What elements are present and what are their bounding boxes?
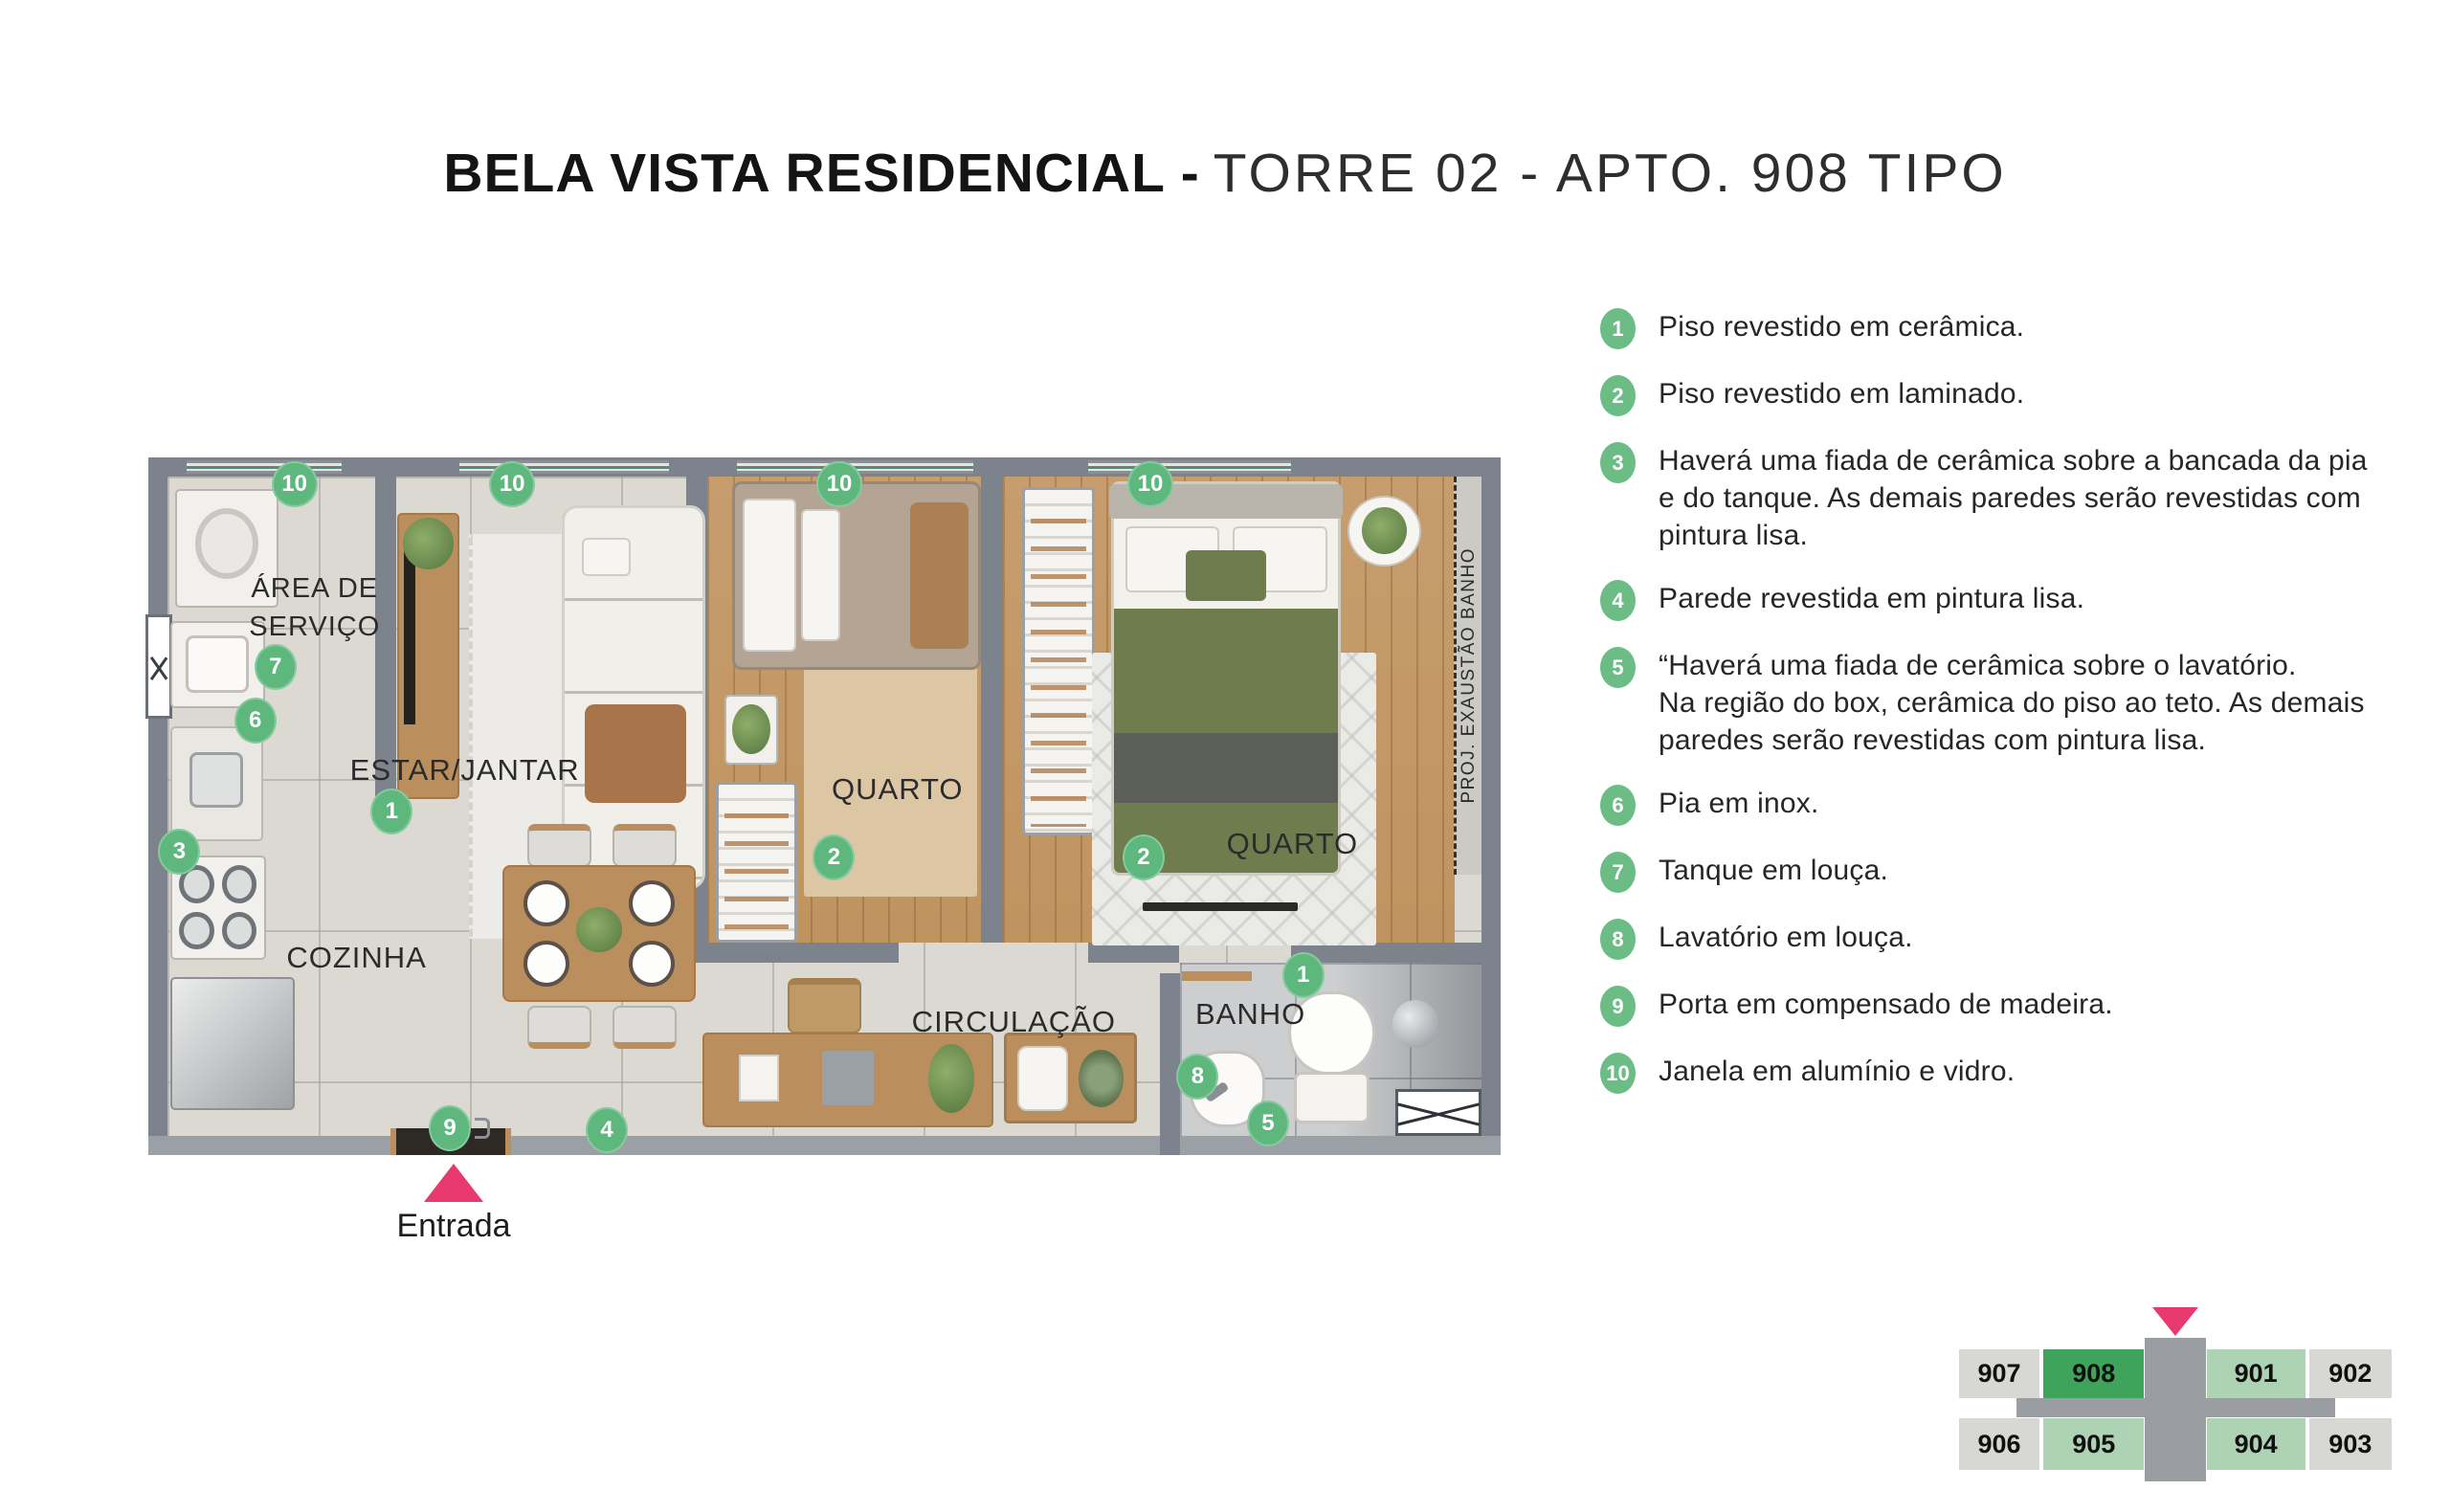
door-handle-icon: [475, 1118, 490, 1139]
bath-shelf: [1182, 971, 1252, 981]
marker-6-sink: 6: [234, 698, 277, 744]
accent-pillow: [1186, 550, 1266, 601]
dining-chair: [612, 1006, 678, 1049]
fridge: [170, 977, 295, 1110]
unit-907: 907: [1957, 1347, 2041, 1400]
plate: [629, 941, 675, 987]
entrance-arrow-icon: [424, 1164, 483, 1202]
page: BELA VISTA RESIDENCIAL -TORRE 02 - APTO.…: [0, 0, 2450, 1512]
unit-906: 906: [1957, 1416, 2041, 1472]
window-service-area: [187, 460, 342, 475]
legend-badge-9: 9: [1600, 986, 1636, 1027]
legend-badge-5: 5: [1600, 647, 1636, 688]
legend-text-2: Piso revestido em laminado.: [1659, 375, 2024, 412]
legend-item-1: 1 Piso revestido em cerâmica.: [1600, 308, 2423, 349]
bedroom2-bed: [1111, 481, 1341, 876]
legend-item-6: 6 Pia em inox.: [1600, 785, 2423, 826]
exhaust-shaft-label: PROJ. EXAUSTÃO BANHO: [1459, 547, 1480, 804]
plate: [523, 941, 569, 987]
marker-5-bath: 5: [1247, 1101, 1289, 1146]
wall-hall-bath: [1160, 973, 1180, 1155]
table-plant: [576, 907, 622, 952]
location-arrow-icon: [2152, 1307, 2198, 1336]
legend-item-8: 8 Lavatório em louça.: [1600, 919, 2423, 960]
legend-badge-1: 1: [1600, 308, 1636, 349]
unit-904: 904: [2205, 1416, 2307, 1472]
blanket-band: [1114, 733, 1338, 803]
bedroom2-tv: [1143, 902, 1298, 911]
marker-10-window2: 10: [489, 461, 535, 507]
plate: [629, 880, 675, 926]
unit-902: 902: [2307, 1347, 2394, 1400]
legend-text-4: Parede revestida em pintura lisa.: [1659, 580, 2084, 617]
plate: [523, 880, 569, 926]
wall-left: [148, 457, 167, 1155]
toilet-tank: [1294, 1072, 1370, 1124]
dining-table: [502, 865, 696, 1001]
wall-hall-seg1: [686, 943, 899, 963]
desk: [702, 1033, 993, 1126]
shower-box: [1395, 1089, 1481, 1135]
desk-chair: [788, 978, 860, 1034]
marker-1-bath: 1: [1282, 952, 1325, 998]
marker-4-wall: 4: [586, 1107, 628, 1153]
bench-pillows: [1017, 1046, 1068, 1110]
dining-chair: [527, 824, 592, 867]
sofa-pillow: [582, 538, 632, 575]
label-area-servico: ÁREA DE SERVIÇO: [249, 569, 380, 646]
desk-notebook: [739, 1055, 779, 1101]
legend-item-9: 9 Porta em compensado de madeira.: [1600, 986, 2423, 1027]
marker-2-bedroom2: 2: [1123, 834, 1165, 880]
living-plant: [403, 518, 455, 569]
legend-text-6: Pia em inox.: [1659, 785, 1818, 822]
marker-10-window1: 10: [272, 461, 318, 507]
legend-badge-7: 7: [1600, 852, 1636, 893]
bench: [1004, 1033, 1136, 1123]
legend: 1 Piso revestido em cerâmica. 2 Piso rev…: [1600, 308, 2423, 1120]
stove-burners: [179, 865, 256, 950]
legend-badge-2: 2: [1600, 375, 1636, 416]
unit-903: 903: [2307, 1416, 2394, 1472]
legend-badge-4: 4: [1600, 580, 1636, 621]
marker-7-tank: 7: [255, 644, 297, 690]
wall-bottom: [148, 1136, 1501, 1155]
dining-chair: [612, 824, 678, 867]
marker-3-counter: 3: [158, 829, 200, 875]
floor-plan: PROJ. EXAUSTÃO BANHO: [148, 457, 1501, 1155]
legend-item-4: 4 Parede revestida em pintura lisa.: [1600, 580, 2423, 621]
duvet: [1114, 609, 1338, 733]
legend-item-5: 5 “Haverá uma fiada de cerâmica sobre o …: [1600, 647, 2423, 759]
label-circulacao: CIRCULAÇÃO: [912, 1003, 1116, 1041]
elevator-core: [2145, 1338, 2206, 1481]
bed-pillow: [743, 499, 796, 652]
legend-text-3: Haverá uma fiada de cerâmica sobre a ban…: [1659, 442, 2368, 554]
wall-right: [1481, 457, 1501, 1155]
bedroom1-side-table: [724, 695, 779, 765]
bedroom2-wardrobe: [1022, 487, 1095, 836]
kitchen-sink: [170, 726, 263, 841]
marker-9-door: 9: [429, 1105, 471, 1151]
legend-text-9: Porta em compensado de madeira.: [1659, 986, 2113, 1023]
bedroom1-bed: [732, 481, 981, 670]
legend-badge-6: 6: [1600, 785, 1636, 826]
title-unit: TORRE 02 - APTO. 908 TIPO: [1214, 143, 2007, 204]
key-plan-block: 907 908 901 902 906 905 904 903: [1957, 1347, 2394, 1472]
dining-chair: [527, 1006, 592, 1049]
legend-item-7: 7 Tanque em louça.: [1600, 852, 2423, 893]
tv: [404, 549, 415, 724]
tank-basin: [186, 635, 249, 694]
unit-905: 905: [2041, 1416, 2146, 1472]
label-quarto1: QUARTO: [832, 770, 964, 809]
exhaust-shaft: PROJ. EXAUSTÃO BANHO: [1454, 477, 1481, 875]
window-bedroom2: [1088, 460, 1291, 475]
desk-plant: [928, 1044, 974, 1113]
legend-text-7: Tanque em louça.: [1659, 852, 1888, 889]
bed-pillow: [801, 509, 840, 640]
legend-item-10: 10 Janela em alumínio e vidro.: [1600, 1053, 2423, 1094]
legend-text-1: Piso revestido em cerâmica.: [1659, 308, 2024, 345]
unit-901: 901: [2205, 1347, 2307, 1400]
side-table-plant: [732, 704, 770, 754]
legend-text-5: “Haverá uma fiada de cerâmica sobre o la…: [1659, 647, 2365, 759]
label-quarto2: QUARTO: [1227, 825, 1359, 863]
marker-10-window4: 10: [1127, 461, 1173, 507]
label-estar-jantar: ESTAR/JANTAR: [350, 751, 580, 789]
page-title: BELA VISTA RESIDENCIAL -TORRE 02 - APTO.…: [0, 142, 2450, 205]
legend-text-8: Lavatório em louça.: [1659, 919, 1913, 956]
label-banho: BANHO: [1195, 995, 1305, 1034]
key-plan: 907 908 901 902 906 905 904 903: [1957, 1305, 2394, 1487]
entrance-label: Entrada: [396, 1208, 510, 1245]
legend-item-3: 3 Haverá uma fiada de cerâmica sobre a b…: [1600, 442, 2423, 554]
desk-laptop: [822, 1051, 874, 1105]
legend-text-10: Janela em alumínio e vidro.: [1659, 1053, 2015, 1090]
marker-1-living: 1: [370, 789, 412, 834]
marker-8-lavatory: 8: [1176, 1054, 1218, 1100]
bath-mirror: [1392, 1000, 1438, 1048]
service-window: [145, 614, 172, 719]
round-table-plant: [1362, 507, 1406, 554]
bench-hat: [1079, 1050, 1125, 1107]
bedroom2-round-table: [1347, 496, 1420, 567]
sink-basin: [189, 752, 243, 808]
label-cozinha: COZINHA: [286, 939, 427, 977]
title-project: BELA VISTA RESIDENCIAL -: [443, 143, 1199, 204]
bedroom1-wardrobe: [716, 782, 797, 943]
marker-10-window3: 10: [816, 461, 862, 507]
sofa-throw: [585, 704, 686, 803]
legend-item-2: 2 Piso revestido em laminado.: [1600, 375, 2423, 416]
legend-badge-3: 3: [1600, 442, 1636, 483]
bed-throw: [910, 502, 969, 649]
window-living: [459, 460, 669, 475]
unit-908-current: 908: [2041, 1347, 2146, 1400]
wall-bedroom1-bedroom2: [981, 477, 1003, 942]
legend-badge-8: 8: [1600, 919, 1636, 960]
marker-2-bedroom1: 2: [813, 834, 855, 880]
legend-badge-10: 10: [1600, 1053, 1636, 1094]
